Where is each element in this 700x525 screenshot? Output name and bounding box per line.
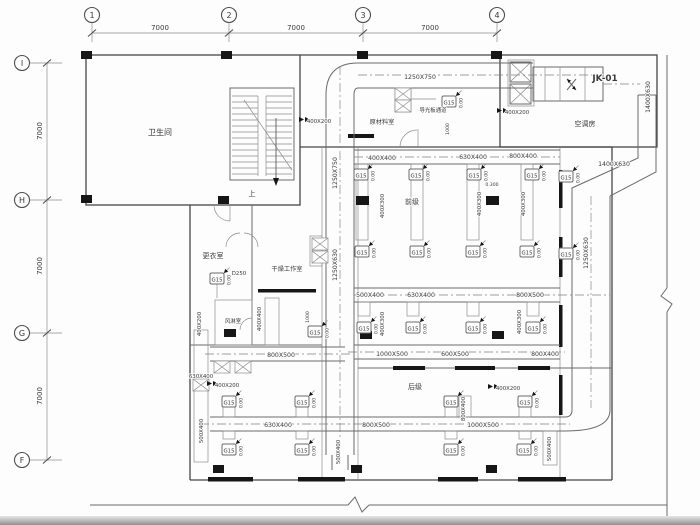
duct-size-label: 630X400 xyxy=(264,422,292,429)
grid-col-label-1: 1 xyxy=(89,11,94,20)
duct-size-label: 1250X750 xyxy=(404,74,436,81)
duct-size-label: 400X300 xyxy=(380,193,386,218)
inline-fan-icon xyxy=(395,88,411,100)
room-label-bathroom: 卫生间 xyxy=(148,127,172,137)
duct-size-label: 400X400 xyxy=(257,306,263,331)
stairwell xyxy=(230,88,294,186)
drop-dimension-label: 1000 xyxy=(305,311,311,323)
dim-label: 7000 xyxy=(36,257,44,275)
room-label-drying: 干燥工作室 xyxy=(272,265,303,273)
filter-section-icon xyxy=(510,84,531,104)
duct-size-label: 800X500 xyxy=(267,352,295,359)
duct-size-label: 500X400 xyxy=(336,439,342,464)
fan-unit-icon xyxy=(235,361,251,373)
fan-unit-icon xyxy=(214,361,230,373)
room-label-light-guide: 导光板通道 xyxy=(420,106,448,114)
duct-size-label: 400X300 xyxy=(477,191,483,216)
duct-size-label: 400X200 xyxy=(197,311,203,336)
room-label-raw-material: 原材料室 xyxy=(370,118,395,126)
stair-direction-label: 上 xyxy=(249,189,256,198)
room-label-air-shower: 风淋室 xyxy=(225,317,242,325)
room-label-changing: 更衣室 xyxy=(203,251,224,260)
duct-size-label: 400X300 xyxy=(380,311,386,336)
duct-size-label: 400X400 xyxy=(368,155,396,162)
duct-size-label: 1250X630 xyxy=(583,237,590,269)
room-label-ahu-room: 空调房 xyxy=(575,119,596,128)
dim-label: 7000 xyxy=(287,24,305,32)
duct-size-label: 400X300 xyxy=(517,309,523,334)
fan-unit-icon xyxy=(193,379,209,391)
duct-size-label: 400X200 xyxy=(307,119,332,125)
duct-size-label: 1250X630 xyxy=(332,249,339,281)
damper-icon xyxy=(312,251,328,263)
duct-size-label: 1000X500 xyxy=(467,422,499,429)
grid-row-label-g: G xyxy=(19,329,25,338)
grid-col-label-3: 3 xyxy=(360,11,365,20)
dim-label: 7000 xyxy=(36,387,44,405)
duct-size-label: 630X400 xyxy=(459,154,487,161)
grid-row-label-f: F xyxy=(20,456,25,465)
duct-size-label: 400X200 xyxy=(496,386,521,392)
grid-row-label-i: I xyxy=(21,59,23,68)
ahu-equipment xyxy=(508,60,640,106)
grid-col-label-4: 4 xyxy=(494,11,499,20)
scan-edge-shadow xyxy=(0,516,700,525)
duct-size-label: 400X200 xyxy=(215,383,240,389)
return-grilles xyxy=(224,196,504,339)
plan-drawing: G15 0.00 xyxy=(0,0,700,525)
duct-size-label: 400X200 xyxy=(505,110,530,116)
duct-size-label: 400X300 xyxy=(521,191,527,216)
damper-icon xyxy=(312,238,328,250)
fan-icon xyxy=(567,79,576,90)
duct-size-label: 800X500 xyxy=(362,422,390,429)
duct-size-label: 800X400 xyxy=(461,396,467,421)
dim-label: 7000 xyxy=(36,122,44,140)
duct-size-label: 1400X630 xyxy=(645,81,652,113)
duct-size-label: 600X500 xyxy=(441,351,469,358)
duct-size-label: 1250X750 xyxy=(332,157,339,189)
filter-section-icon xyxy=(510,62,531,82)
duct-size-label: 500X400 xyxy=(199,418,205,443)
room-label-rear-stage: 后级 xyxy=(408,382,422,391)
room-label-front-stage: 前级 xyxy=(405,197,419,206)
room-labels: 卫生间 上 JK-01 空调房 原材料室 导光板通道 更衣室 干燥工作室 风淋室… xyxy=(148,74,618,391)
duct-size-label: 800X500 xyxy=(516,292,544,299)
elevation-label: 0.300 xyxy=(485,182,498,188)
duct-size-label: D250 xyxy=(232,271,247,277)
dim-label: 7000 xyxy=(151,24,169,32)
duct-size-label: 1400X630 xyxy=(598,161,630,168)
duct-size-label: 630X400 xyxy=(189,374,214,380)
grid-col-label-2: 2 xyxy=(226,11,231,20)
hvac-floor-plan-sheet: G15 0.00 xyxy=(0,0,700,525)
duct-size-label: 500X400 xyxy=(356,292,384,299)
duct-size-label: 500X400 xyxy=(547,436,553,461)
ahu-unit-tag-label: JK-01 xyxy=(591,74,617,84)
grid-row-label-h: H xyxy=(19,196,25,205)
duct-size-label: 630X400 xyxy=(407,292,435,299)
duct-size-label: 800X400 xyxy=(509,153,537,160)
inline-fan-icon xyxy=(395,100,411,112)
dim-label: 7000 xyxy=(421,24,439,32)
duct-size-label: 800X400 xyxy=(531,351,559,358)
duct-size-label: 1000X500 xyxy=(376,351,408,358)
drop-dimension-label: 1000 xyxy=(445,123,451,135)
